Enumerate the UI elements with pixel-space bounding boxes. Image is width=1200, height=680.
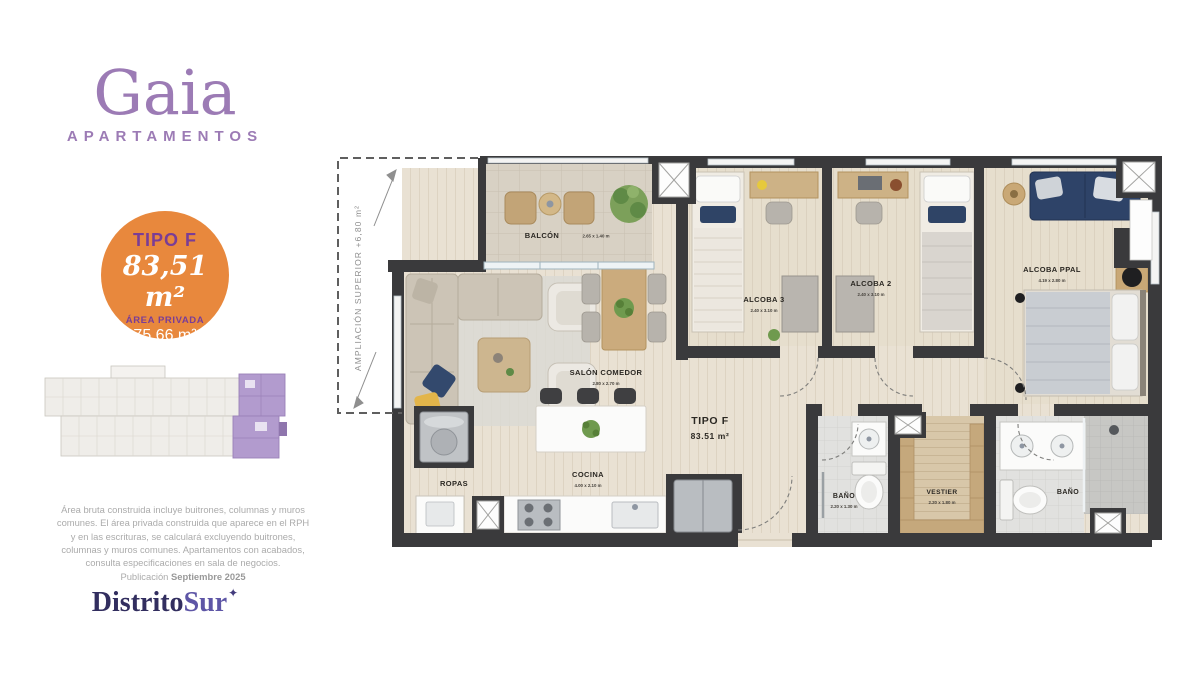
fridge [666, 474, 742, 536]
unit-area-label: 83.51 m² [691, 431, 730, 441]
dims-cocina: 4.00 x 2.10 m [574, 483, 601, 488]
label-vestier: VESTIER [926, 489, 957, 496]
brochure-page: Gaia APARTAMENTOS TIPO F 83,51 m² ÁREA P… [0, 0, 1200, 680]
label-alcoba-ppal: ALCOBA PPAL [1023, 265, 1081, 274]
dims-bano1: 2.20 x 1.30 m [830, 504, 857, 509]
shaft-icon [1095, 513, 1121, 533]
lamp-round [1122, 267, 1142, 287]
shaft-icon [477, 501, 499, 529]
dims-balcon: 2.65 x 1.40 m [582, 234, 609, 239]
floorplan: AMPLIACIÓN SUPERIOR +6,80 m² BALCÓN 2.65… [330, 128, 1170, 588]
dims-alcoba-ppal: 4.19 x 2.80 m [1038, 278, 1065, 283]
dims-salon: 2.80 x 2.70 m [592, 381, 619, 386]
developer-name-secondary: Sur [184, 587, 228, 618]
desk-lamp [757, 180, 767, 190]
shaft-icon [1123, 162, 1155, 192]
unit-type-label: TIPO F [691, 415, 728, 427]
shower-head [1109, 425, 1119, 435]
laptop [858, 176, 882, 190]
badge-private-label: ÁREA PRIVADA [101, 315, 229, 326]
dresser [782, 276, 818, 332]
dims-alcoba2: 2.40 x 3.10 m [857, 292, 884, 297]
shaft-icon [895, 416, 921, 434]
bar-stool [540, 388, 562, 404]
label-bano2: BAÑO [1057, 487, 1079, 496]
badge-type-label: TIPO F [101, 230, 229, 251]
floorplan-svg: AMPLIACIÓN SUPERIOR +6,80 m² BALCÓN 2.65… [330, 128, 1170, 588]
legal-line: columnas y muros comunes. Apartamentos c… [52, 543, 314, 556]
label-alcoba3: ALCOBA 3 [743, 295, 784, 304]
developer-logo: DistritoSur✦ [0, 586, 330, 619]
publication-date: Septiembre 2025 [171, 571, 246, 582]
brand-logo: Gaia [0, 62, 330, 124]
sparkle-icon: ✦ [228, 586, 238, 600]
coffee-table [478, 338, 530, 392]
badge-private-area: 75,66 m² [101, 327, 229, 345]
shaft-icon [659, 163, 689, 197]
kitchen-sink [612, 502, 658, 528]
desk-chair [766, 202, 792, 224]
balcony-glass-door[interactable] [484, 262, 654, 269]
toilet [852, 462, 886, 509]
label-ropas: ROPAS [440, 479, 468, 488]
legal-line: comunes. El área privada construida que … [52, 516, 314, 529]
badge-total-area: 83,51 m² [101, 251, 229, 313]
keyplan-highlighted-unit [233, 374, 287, 458]
balcony-chair [564, 192, 594, 224]
brand-block: Gaia APARTAMENTOS [0, 62, 330, 145]
developer-name-primary: Distrito [92, 587, 184, 618]
desk-decor [890, 179, 902, 191]
bar-stool [577, 388, 599, 404]
bar-stool [614, 388, 636, 404]
label-alcoba2: ALCOBA 2 [850, 279, 891, 288]
bed-double [1015, 290, 1146, 396]
legal-line: Área bruta construida incluye buitrones,… [52, 503, 314, 516]
label-bano1: BAÑO [833, 491, 855, 500]
label-salon: SALÓN COMEDOR [570, 368, 643, 377]
label-balcon: BALCÓN [525, 231, 559, 240]
bed-single [920, 172, 974, 332]
legal-line: consulta especificaciones en sala de neg… [52, 556, 314, 569]
legal-publication: Publicación Septiembre 2025 [52, 570, 314, 583]
area-badge: TIPO F 83,51 m² ÁREA PRIVADA 75,66 m² [101, 211, 229, 339]
stove [518, 500, 560, 530]
legal-disclaimer: Área bruta construida incluye buitrones,… [52, 503, 314, 583]
ampliacion-label: AMPLIACIÓN SUPERIOR +6,80 m² [353, 205, 363, 371]
table-decor [493, 353, 503, 363]
balcony-chair [505, 192, 536, 224]
brand-subtitle: APARTAMENTOS [0, 128, 330, 145]
building-keyplan [33, 356, 303, 474]
sidebar: Gaia APARTAMENTOS TIPO F 83,51 m² ÁREA P… [0, 0, 330, 680]
desk-chair [856, 202, 882, 224]
label-cocina: COCINA [572, 470, 604, 479]
bed-single [692, 172, 744, 332]
dims-vestier: 2.20 x 1.80 m [928, 500, 955, 505]
legal-line: y en las escrituras, se calculará excluy… [52, 530, 314, 543]
plant-small [768, 329, 780, 341]
dims-alcoba3: 2.40 x 3.10 m [750, 308, 777, 313]
